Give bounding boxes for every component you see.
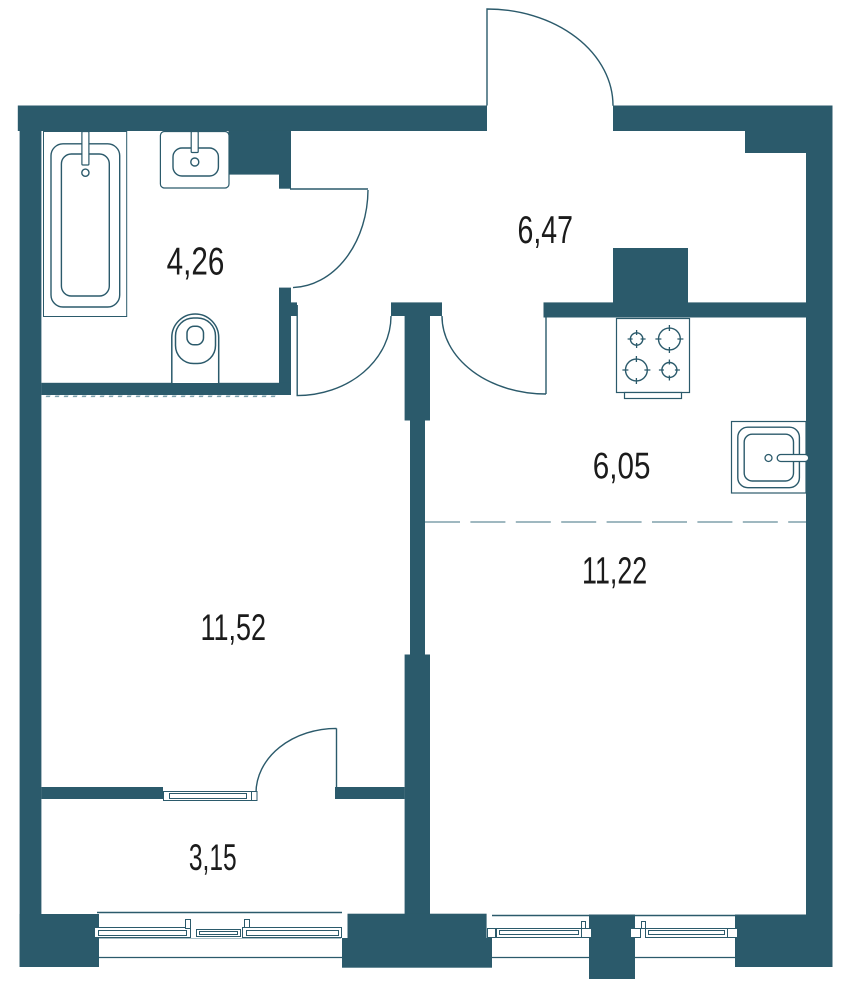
svg-text:6,05: 6,05 [593, 445, 651, 487]
svg-text:11,22: 11,22 [582, 549, 647, 592]
svg-text:11,52: 11,52 [200, 607, 265, 648]
svg-text:6,47: 6,47 [517, 209, 572, 252]
svg-text:3,15: 3,15 [189, 836, 237, 879]
svg-text:4,26: 4,26 [167, 241, 225, 284]
